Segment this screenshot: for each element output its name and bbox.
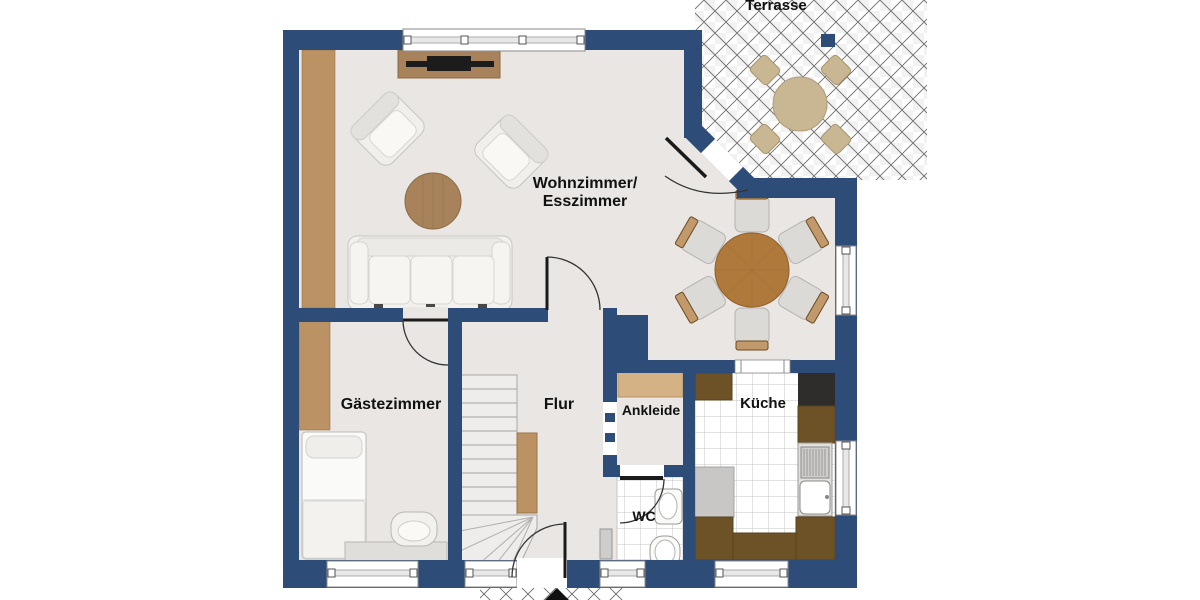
kitchen-counter <box>733 533 796 560</box>
radiator <box>600 529 612 559</box>
dressing-room <box>618 372 683 397</box>
label-terrasse: Terrasse <box>745 0 806 14</box>
wall-guest-east <box>448 322 462 560</box>
window <box>836 441 856 515</box>
terrace-table <box>773 77 827 131</box>
sofa <box>348 236 512 310</box>
label-ankleide: Ankleide <box>622 402 680 418</box>
wall-wc-east <box>683 465 695 560</box>
kitchen-counter <box>695 373 732 400</box>
kitchen-counter <box>695 517 733 560</box>
label-kueche: Küche <box>740 395 786 412</box>
window <box>600 561 645 587</box>
bed <box>302 432 366 559</box>
entrance-path <box>480 588 625 600</box>
wall-interior <box>299 308 403 322</box>
wall-ankleide-top <box>613 360 735 373</box>
window <box>836 246 856 315</box>
window <box>403 29 585 51</box>
wall-terrace-left <box>684 30 702 138</box>
floor-plan: Terrasse Wohnzimmer/ Esszimmer Gästezimm… <box>0 0 1200 600</box>
label-flur: Flur <box>544 396 574 414</box>
wall-left <box>283 30 299 560</box>
label-gaestezimmer: Gästezimmer <box>341 396 442 414</box>
kitchen-appliance <box>798 373 835 406</box>
door-opening <box>548 307 603 323</box>
kitchen-sink-unit <box>798 443 832 516</box>
entrance-opening <box>517 558 567 590</box>
label-wohnzimmer-line2: Esszimmer <box>533 193 638 211</box>
door-opening <box>620 465 664 477</box>
kitchen-dishwasher <box>695 467 734 517</box>
desk-chair <box>391 512 437 546</box>
kitchen-counter <box>798 406 835 443</box>
kitchen-counter <box>796 517 835 560</box>
dressing-opening <box>603 402 617 455</box>
kitchen-passage <box>735 360 790 373</box>
wall-ankleide-kitchen <box>683 360 695 477</box>
dressing-wardrobe <box>618 372 683 397</box>
terrace-post <box>821 34 835 47</box>
floor-plan-drawing <box>0 0 1200 600</box>
window <box>465 561 517 587</box>
wall-interior <box>448 308 548 322</box>
wc-sink <box>655 489 682 524</box>
living-wardrobe-strip <box>302 50 335 308</box>
wall-terrace-bottom <box>737 178 857 198</box>
label-wc: WC <box>632 508 655 524</box>
window <box>715 561 788 587</box>
wall-kitchen-top <box>790 360 835 373</box>
dining-table-grain <box>715 233 789 307</box>
guest-wardrobe-strip <box>299 318 330 430</box>
window <box>327 561 418 587</box>
stair-handrail <box>517 433 537 513</box>
terrace-area <box>695 0 927 180</box>
label-wohnzimmer: Wohnzimmer/ Esszimmer <box>533 175 638 211</box>
dining-chair <box>735 308 769 350</box>
wall-right <box>835 178 857 588</box>
label-wohnzimmer-line1: Wohnzimmer/ <box>533 175 638 193</box>
